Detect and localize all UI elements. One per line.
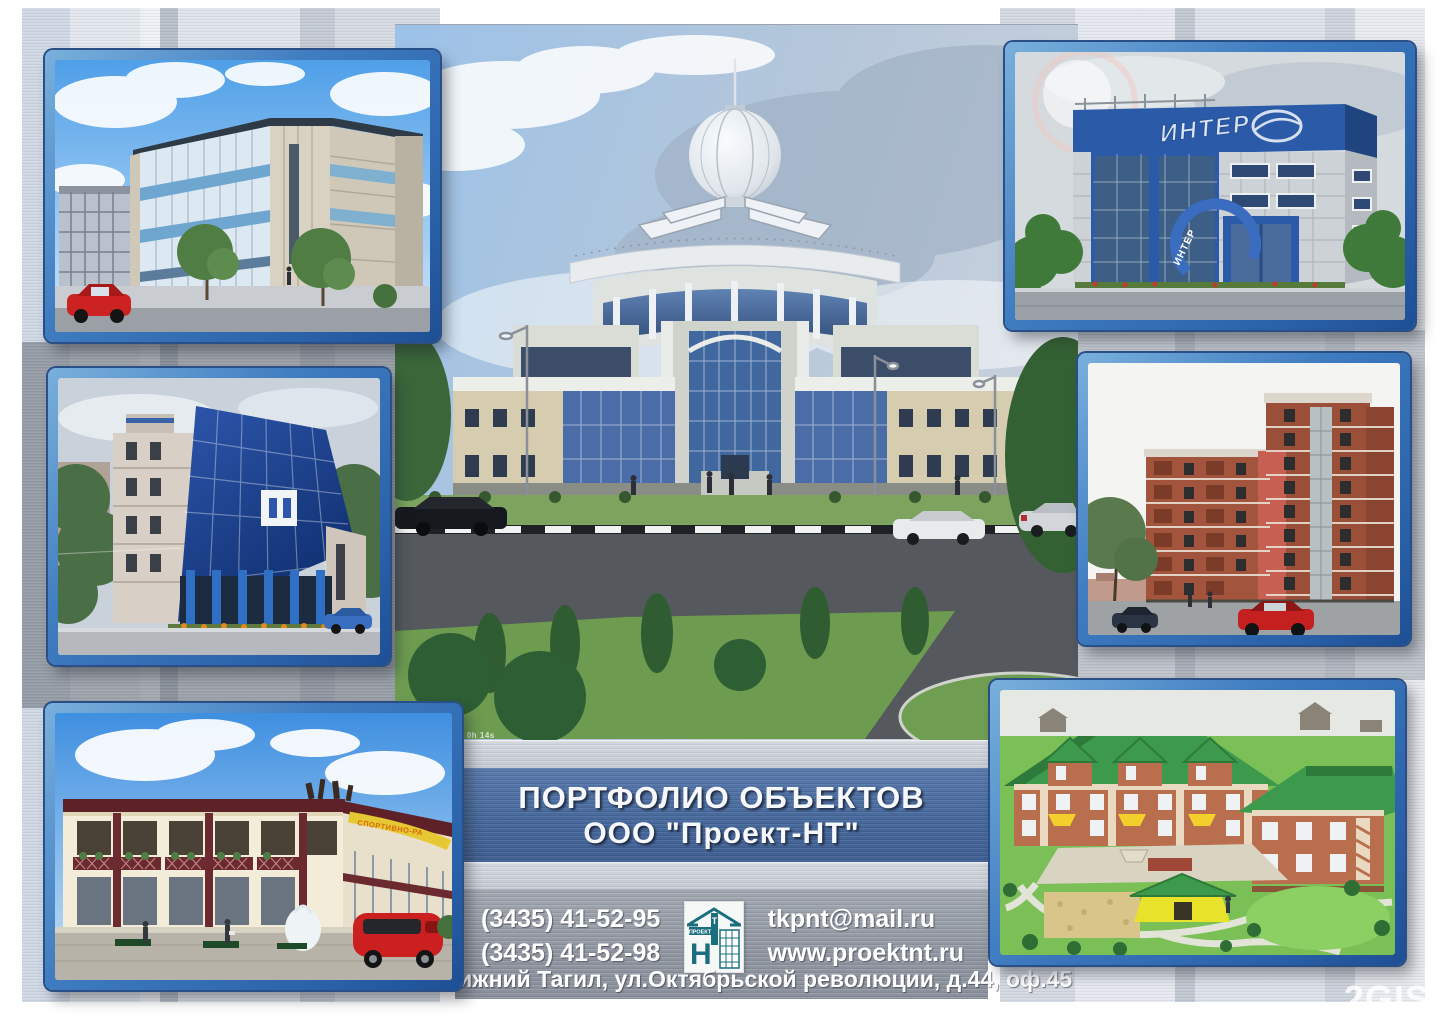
frame-office-building (45, 50, 440, 342)
phone-numbers: (3435) 41-52-95 (3435) 41-52-98 (481, 903, 660, 971)
divider-strip-middle (455, 862, 988, 890)
road (1015, 288, 1405, 320)
dormer-gables (1044, 738, 1236, 786)
company-logo: Т ПРОЕКТ Н (684, 901, 744, 973)
road (58, 631, 380, 655)
external-stair (1356, 818, 1370, 880)
person (287, 267, 292, 286)
sand-playground (1044, 892, 1140, 938)
title-line-2: ООО "Проект-НТ" (583, 819, 859, 849)
portfolio-poster: in hr30p 0h 14s ПОРТФОЛИО ОБЪЕКТОВ ООО "… (0, 0, 1440, 1017)
title-banner: ПОРТФОЛИО ОБЪЕКТОВ ООО "Проект-НТ" (455, 768, 988, 862)
domed-building-scene (395, 25, 1078, 741)
frame-inter-center: ИНТЕР (1005, 42, 1415, 330)
title-line-1: ПОРТФОЛИО ОБЪЕКТОВ (518, 782, 924, 813)
web-contacts: tkpnt@mail.ru www.proektnt.ru (768, 903, 964, 971)
central-render-domed-building: in hr30p 0h 14s (395, 24, 1078, 741)
frame-blue-glass-tower (48, 368, 390, 665)
frame-brick-apartments (1078, 353, 1410, 645)
sport-center-render: СПОРТИВНО-РА (55, 713, 452, 980)
kindergarten-render (1000, 690, 1395, 955)
phone-1: (3435) 41-52-95 (481, 903, 660, 937)
frame-kindergarten (990, 680, 1405, 965)
proekt-nt-logo-icon: Т ПРОЕКТ Н (686, 904, 742, 970)
inter-building: ИНТЕР (1073, 94, 1377, 284)
email: tkpnt@mail.ru (768, 903, 964, 937)
lower-windows (77, 877, 295, 925)
right-lawn (1246, 886, 1390, 950)
inter-center-render: ИНТЕР (1015, 52, 1405, 320)
logo-word: ПРОЕКТ (689, 930, 712, 936)
office-building-render (55, 60, 430, 332)
flower-strip (1075, 282, 1345, 289)
office-main-building (130, 118, 423, 298)
entrance-colonnade (180, 570, 332, 624)
blue-glass-tower-render (58, 378, 380, 655)
brick-apartments-render (1088, 363, 1400, 635)
distant-building (59, 186, 131, 290)
logo-letter-t: Т (712, 916, 718, 926)
address-line: г.Нижний Тагил, ул.Октябрьской революции… (430, 964, 1070, 994)
2gis-watermark: 2GIS (1344, 978, 1430, 1017)
divider-strip-top (455, 740, 988, 770)
frame-sport-center: СПОРТИВНО-РА (45, 703, 462, 990)
courtyard-plaza (1036, 844, 1288, 884)
